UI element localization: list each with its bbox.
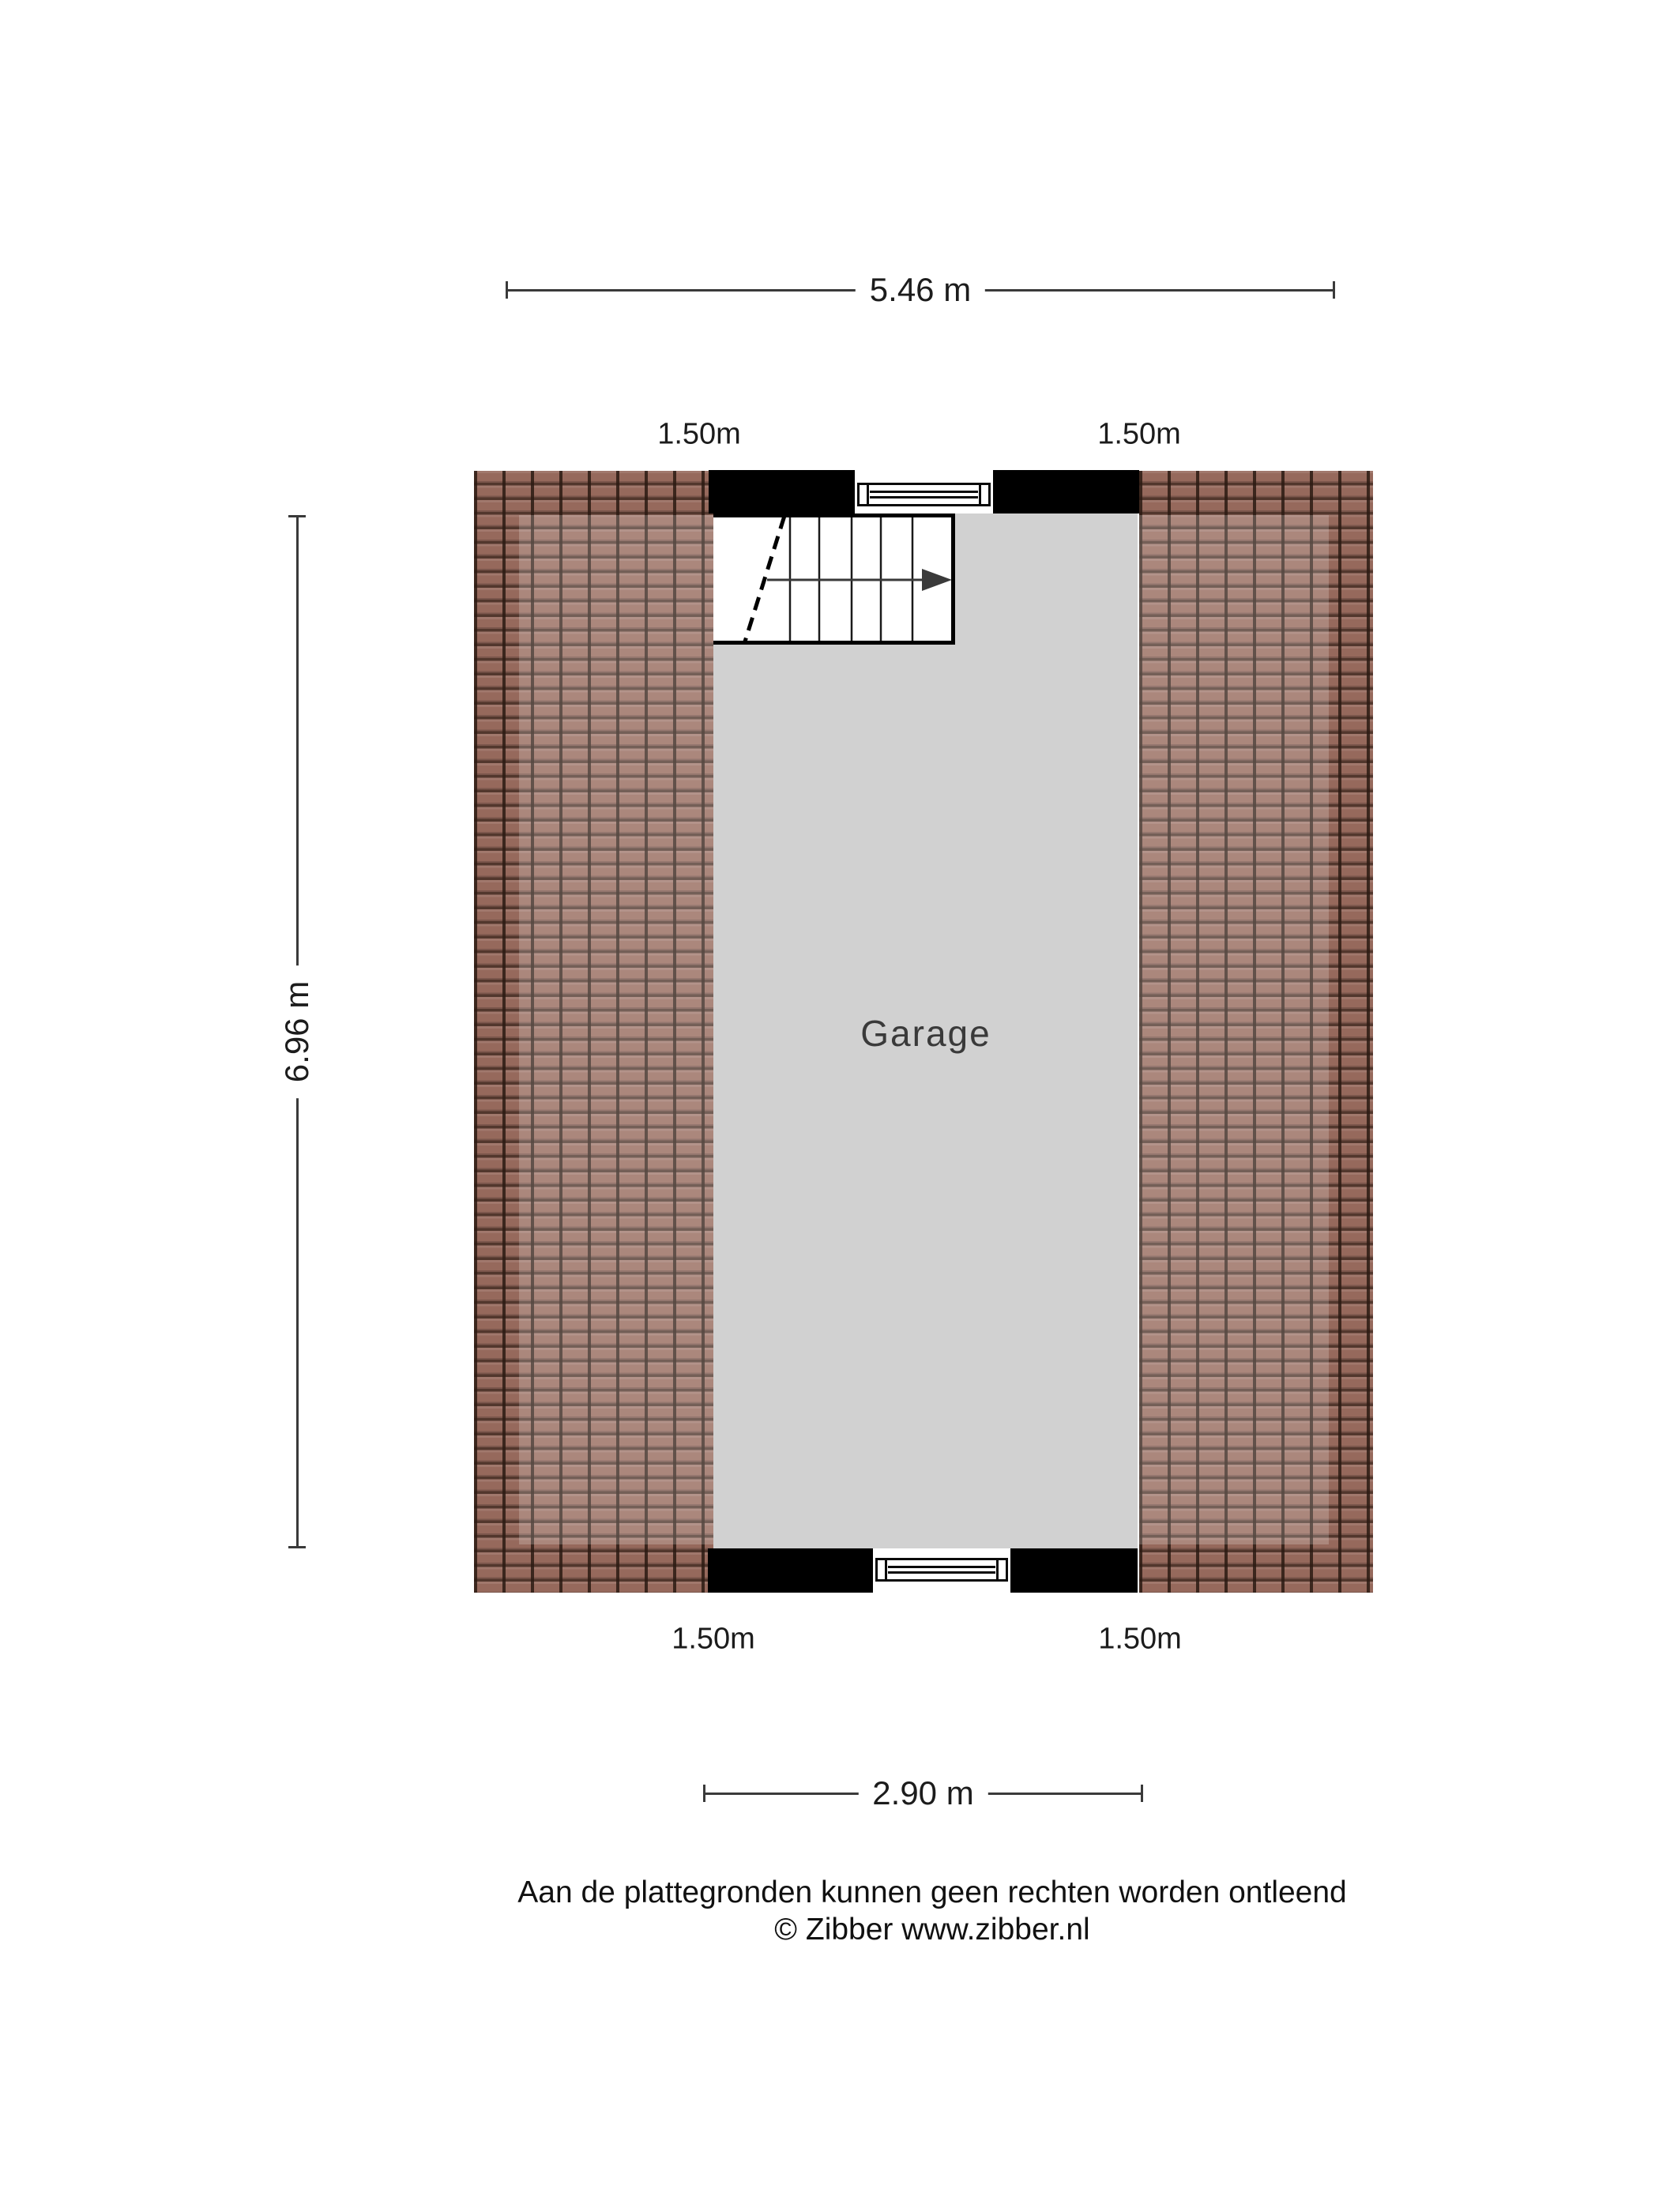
footer-copyright: © Zibber www.zibber.nl xyxy=(213,1911,1651,1948)
wall-bottom-right xyxy=(1010,1548,1138,1593)
dimension-total-width: 5.46 m xyxy=(506,289,1335,292)
roof-top-left-label: 1.50m xyxy=(657,418,741,452)
window-top xyxy=(857,483,991,506)
roof-top-right-label: 1.50m xyxy=(1097,418,1181,452)
roof-right-inner-shading xyxy=(1139,515,1329,1544)
dimension-total-depth-label: 6.96 m xyxy=(276,965,318,1098)
footer-disclaimer: Aan de plattegronden kunnen geen rechten… xyxy=(213,1874,1651,1911)
floorplan-page: { "plan": { "room": { "label": "Garage" … xyxy=(0,0,1659,2212)
footer: Aan de plattegronden kunnen geen rechten… xyxy=(213,1874,1651,1948)
window-bottom xyxy=(875,1558,1008,1582)
dimension-total-depth: 6.96 m xyxy=(296,515,299,1548)
dimension-opening-width-label: 2.90 m xyxy=(858,1773,987,1814)
wall-top-left xyxy=(709,470,855,513)
roof-left xyxy=(474,471,713,1593)
dimension-total-width-label: 5.46 m xyxy=(856,269,985,310)
room-label-garage: Garage xyxy=(860,1012,991,1055)
roof-right xyxy=(1139,471,1373,1593)
stairs-drawing xyxy=(713,513,955,645)
stairs xyxy=(713,513,955,645)
roof-bottom-right-label: 1.50m xyxy=(1098,1623,1182,1657)
dimension-opening-width: 2.90 m xyxy=(703,1793,1143,1795)
roof-left-inner-shading xyxy=(519,515,713,1544)
wall-top-right xyxy=(993,470,1139,513)
roof-bottom-left-label: 1.50m xyxy=(671,1623,755,1657)
wall-bottom-left xyxy=(708,1548,873,1593)
